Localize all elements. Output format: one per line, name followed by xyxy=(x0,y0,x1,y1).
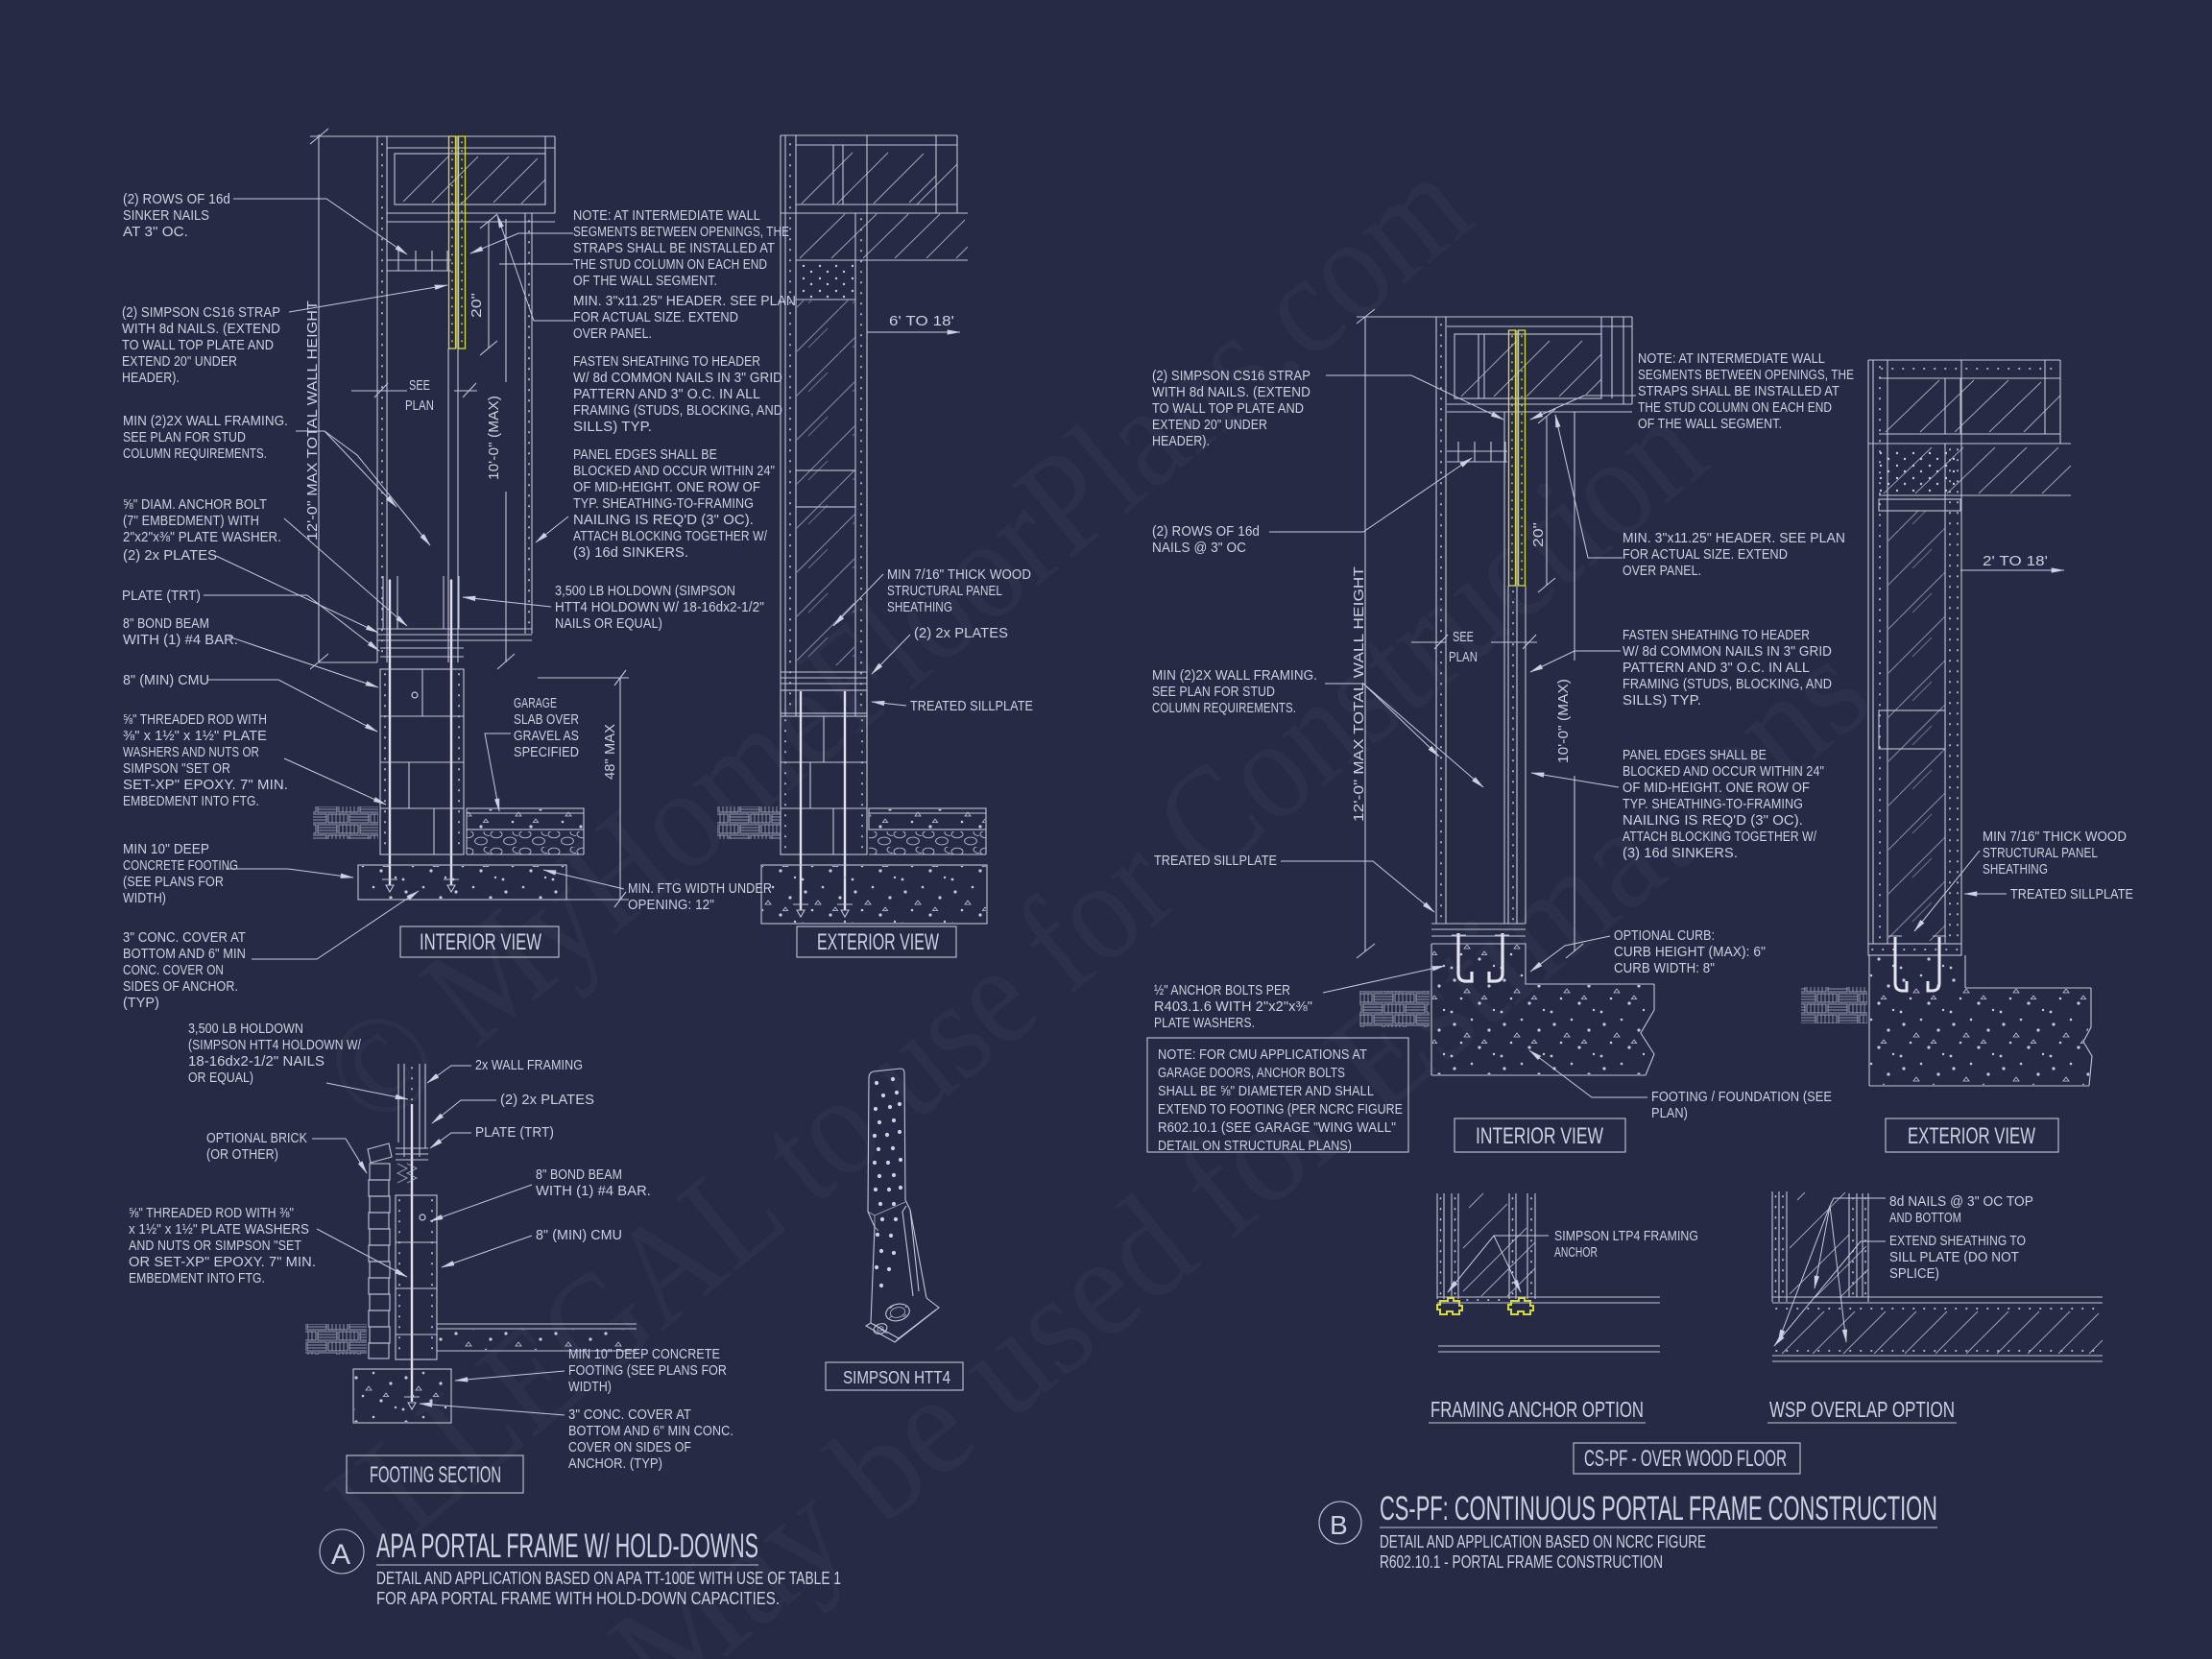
svg-text:(2) 2x PLATES: (2) 2x PLATES xyxy=(123,547,217,564)
svg-text:INTERIOR VIEW: INTERIOR VIEW xyxy=(1476,1123,1603,1149)
svg-text:CS-PF: CONTINUOUS PORTAL FRAME: CS-PF: CONTINUOUS PORTAL FRAME CONSTRUCT… xyxy=(1380,1490,1937,1527)
svg-text:PLAN: PLAN xyxy=(405,397,434,414)
svg-text:INTERIOR VIEW: INTERIOR VIEW xyxy=(420,929,541,955)
svg-text:48" MAX: 48" MAX xyxy=(602,724,618,780)
svg-text:PANEL EDGES SHALL BEBLOCKED AN: PANEL EDGES SHALL BEBLOCKED AND OCCUR WI… xyxy=(573,446,775,561)
svg-text:R602.10.1 - PORTAL FRAME CONST: R602.10.1 - PORTAL FRAME CONSTRUCTION xyxy=(1380,1552,1663,1572)
svg-text:2x WALL FRAMING: 2x WALL FRAMING xyxy=(475,1057,583,1073)
svg-text:SEE: SEE xyxy=(409,377,430,394)
svg-text:TREATED SILLPLATE: TREATED SILLPLATE xyxy=(2010,886,2133,902)
svg-text:CS-PF - OVER WOOD FLOOR: CS-PF - OVER WOOD FLOOR xyxy=(1584,1446,1787,1472)
svg-text:WSP OVERLAP OPTION: WSP OVERLAP OPTION xyxy=(1769,1397,1955,1422)
svg-text:TREATED SILLPLATE: TREATED SILLPLATE xyxy=(1154,853,1277,869)
svg-text:FOOTING SECTION: FOOTING SECTION xyxy=(370,1462,501,1488)
svg-text:TREATED SILLPLATE: TREATED SILLPLATE xyxy=(910,698,1033,714)
svg-text:DETAIL AND APPLICATION BASED O: DETAIL AND APPLICATION BASED ON APA TT-1… xyxy=(376,1569,841,1588)
svg-text:PLATE (TRT): PLATE (TRT) xyxy=(122,588,201,604)
svg-text:20": 20" xyxy=(469,293,485,318)
svg-text:EXTERIOR VIEW: EXTERIOR VIEW xyxy=(1908,1123,2035,1149)
svg-text:20": 20" xyxy=(1530,522,1547,547)
svg-text:PANEL EDGES SHALL BEBLOCKED AN: PANEL EDGES SHALL BEBLOCKED AND OCCUR WI… xyxy=(1623,747,1824,861)
svg-text:SEE: SEE xyxy=(1453,629,1474,645)
svg-text:PLATE (TRT): PLATE (TRT) xyxy=(475,1124,554,1141)
svg-text:6' TO 18': 6' TO 18' xyxy=(889,313,954,329)
svg-text:8" (MIN) CMU: 8" (MIN) CMU xyxy=(536,1227,622,1243)
svg-text:APA PORTAL FRAME W/ HOLD-DOWNS: APA PORTAL FRAME W/ HOLD-DOWNS xyxy=(376,1527,758,1565)
svg-text:8" (MIN) CMU: 8" (MIN) CMU xyxy=(123,672,209,688)
svg-text:10'-0" (MAX): 10'-0" (MAX) xyxy=(486,396,502,480)
svg-text:10'-0" (MAX): 10'-0" (MAX) xyxy=(1555,679,1572,763)
svg-text:(2) 2x PLATES: (2) 2x PLATES xyxy=(500,1092,594,1108)
svg-text:⅝" DIAM. ANCHOR BOLT(7" EMBEDM: ⅝" DIAM. ANCHOR BOLT(7" EMBEDMENT) WITH2… xyxy=(123,496,281,545)
svg-text:12'-0" MAX TOTAL WALL HEIGHT: 12'-0" MAX TOTAL WALL HEIGHT xyxy=(1351,566,1367,822)
svg-text:(2) 2x PLATES: (2) 2x PLATES xyxy=(914,625,1008,641)
svg-text:2' TO 18': 2' TO 18' xyxy=(1983,553,2048,569)
svg-text:SIMPSON HTT4: SIMPSON HTT4 xyxy=(843,1368,950,1387)
svg-text:FRAMING ANCHOR OPTION: FRAMING ANCHOR OPTION xyxy=(1431,1397,1644,1422)
svg-text:DETAIL AND APPLICATION BASED O: DETAIL AND APPLICATION BASED ON NCRC FIG… xyxy=(1380,1532,1706,1551)
svg-text:(2) ROWS OF 16dNAILS @ 3" OC: (2) ROWS OF 16dNAILS @ 3" OC xyxy=(1152,523,1260,556)
svg-text:12'-0" MAX TOTAL WALL HEIGHT: 12'-0" MAX TOTAL WALL HEIGHT xyxy=(304,301,321,541)
svg-text:FOR APA PORTAL FRAME WITH HOLD: FOR APA PORTAL FRAME WITH HOLD-DOWN CAPA… xyxy=(376,1589,780,1608)
svg-text:PLAN: PLAN xyxy=(1449,649,1478,665)
svg-text:EXTERIOR VIEW: EXTERIOR VIEW xyxy=(817,929,939,955)
svg-text:A: A xyxy=(331,1539,350,1571)
svg-text:B: B xyxy=(1330,1510,1348,1540)
